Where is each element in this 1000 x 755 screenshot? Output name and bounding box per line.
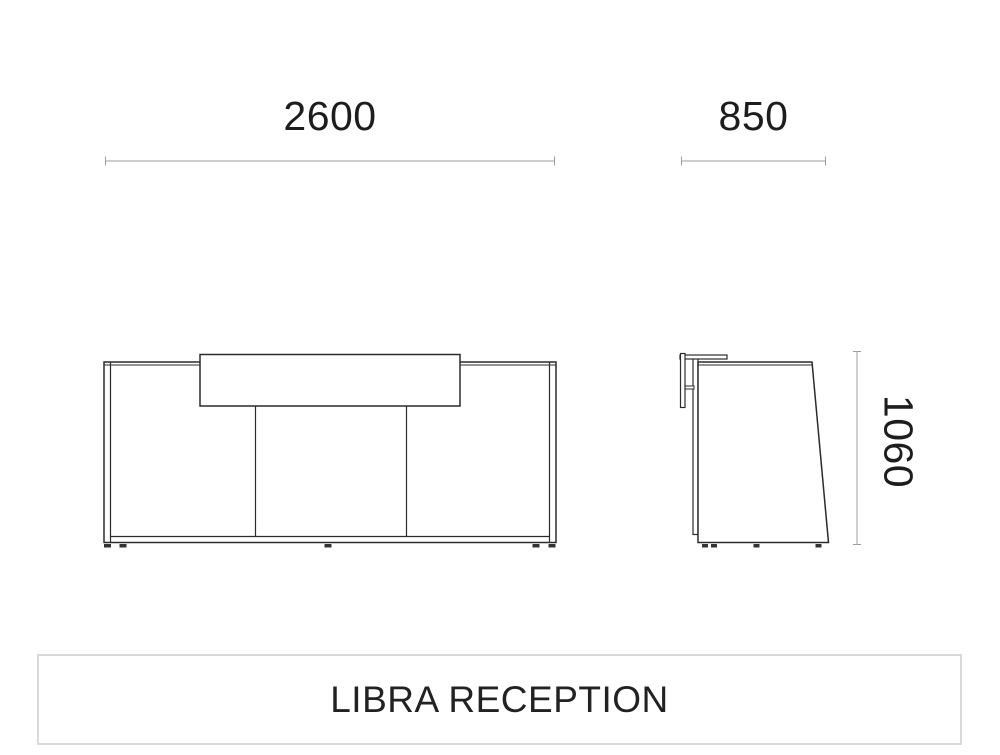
dimension-depth-label: 850 bbox=[681, 96, 826, 137]
dimension-height-line bbox=[853, 352, 861, 545]
product-title-box: LIBRA RECEPTION bbox=[37, 654, 962, 745]
side-counter-top-slab bbox=[680, 355, 727, 359]
foot bbox=[120, 544, 127, 548]
foot bbox=[104, 544, 111, 548]
foot bbox=[533, 544, 540, 548]
dimension-width-label: 2600 bbox=[105, 96, 555, 137]
side-counter-bracket bbox=[685, 386, 694, 389]
dimension-height-label: 1060 bbox=[878, 342, 919, 542]
foot bbox=[549, 544, 556, 548]
side-counter-front-panel bbox=[681, 354, 686, 408]
foot bbox=[702, 544, 708, 548]
product-title: LIBRA RECEPTION bbox=[330, 679, 669, 721]
foot bbox=[816, 544, 822, 548]
front-feet bbox=[104, 544, 556, 548]
side-feet bbox=[702, 544, 822, 548]
dimension-width-line bbox=[106, 157, 555, 166]
technical-drawing-page: 2600 850 1060 LIBRA RECEPTION bbox=[0, 0, 1000, 755]
side-view bbox=[680, 354, 829, 548]
foot bbox=[325, 544, 332, 548]
side-body-outline bbox=[698, 362, 829, 543]
foot bbox=[711, 544, 717, 548]
dimension-depth-line bbox=[682, 157, 826, 166]
front-counter-shelf bbox=[200, 355, 460, 407]
front-view bbox=[104, 355, 556, 548]
foot bbox=[754, 544, 760, 548]
